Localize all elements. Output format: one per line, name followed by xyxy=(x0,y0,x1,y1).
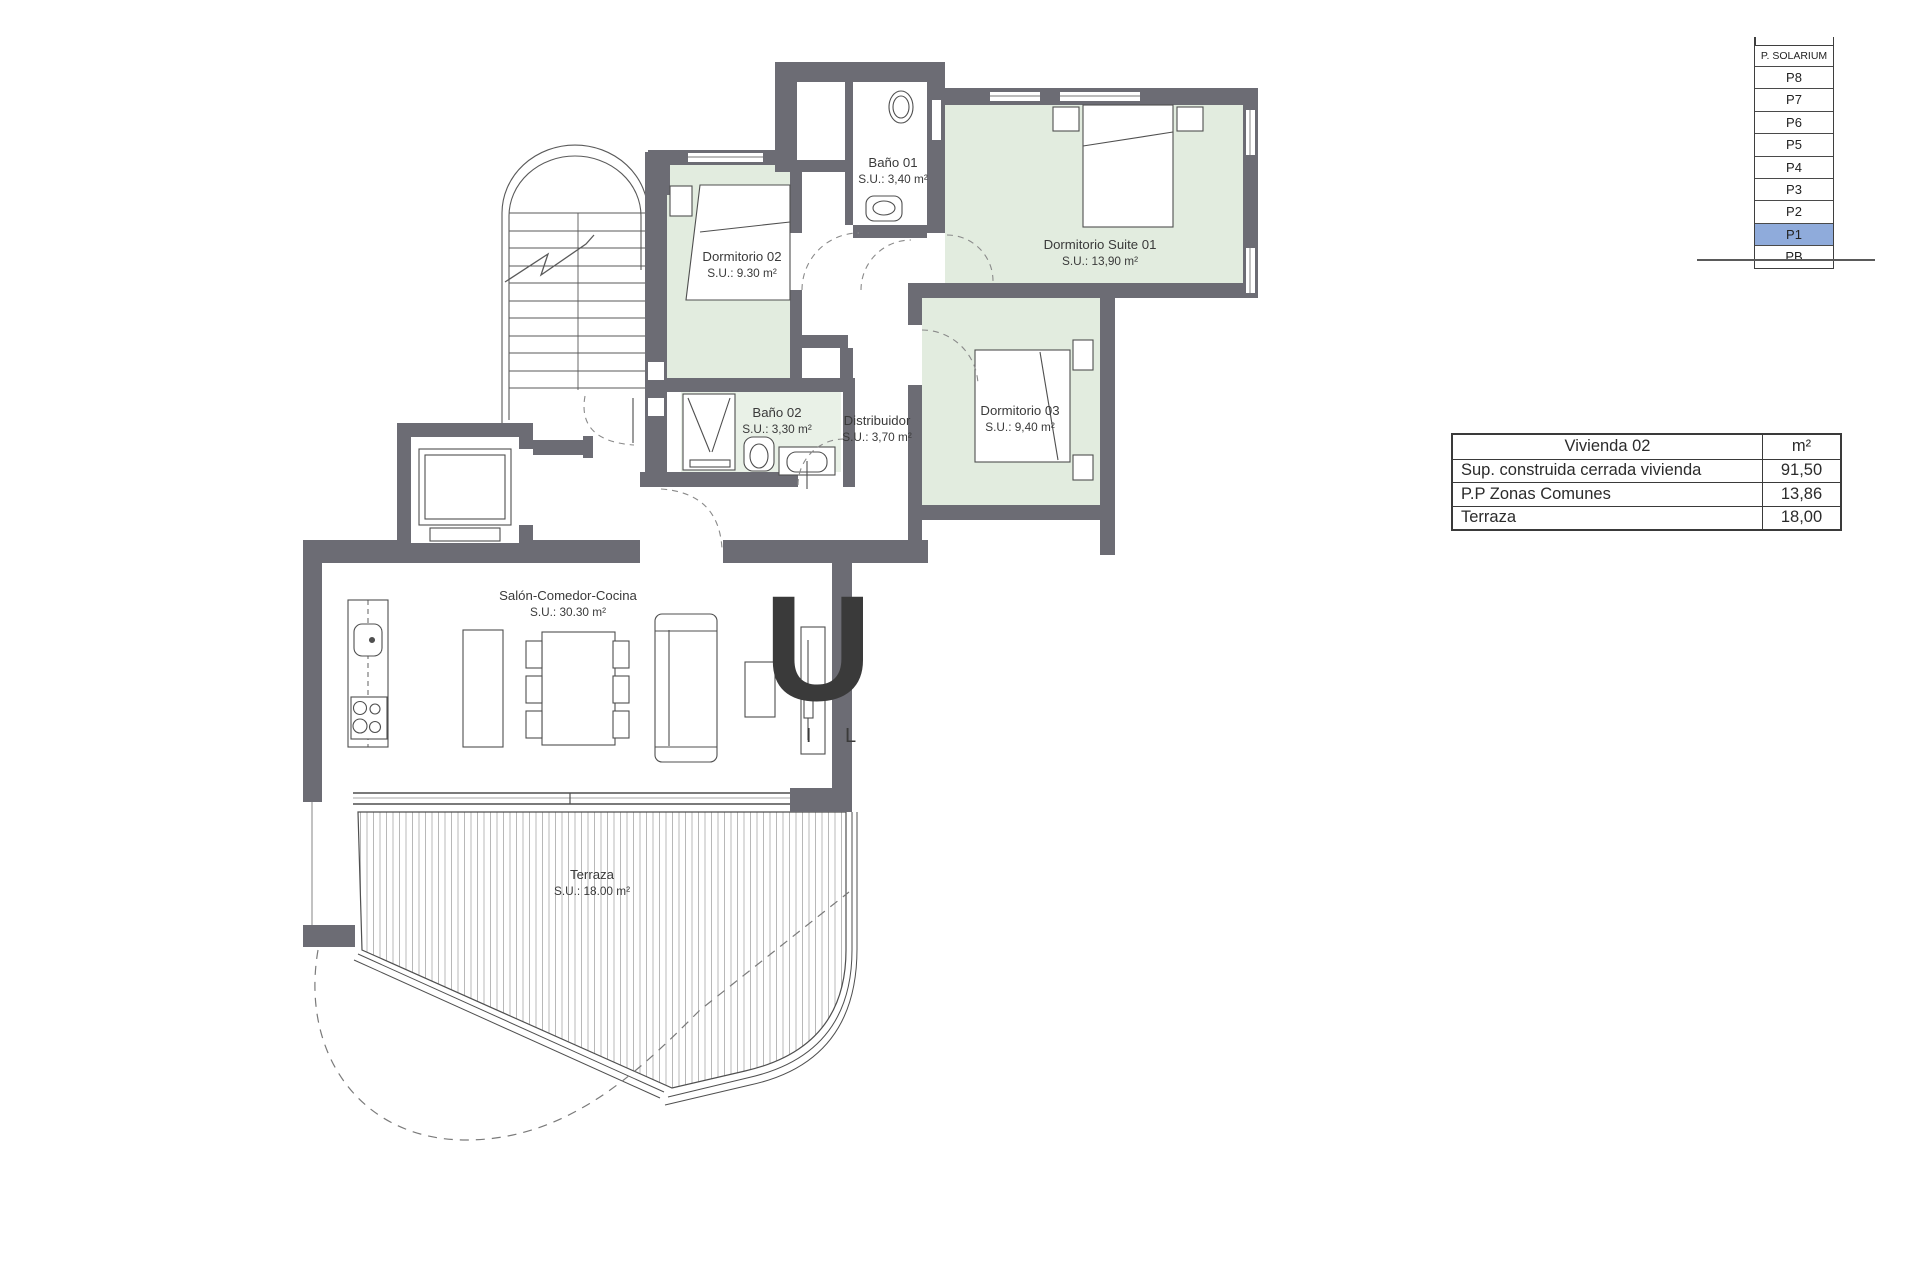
bed-dorm02 xyxy=(686,185,790,300)
stair-treads xyxy=(509,213,648,390)
area-table-title: Vivienda 02 xyxy=(1453,435,1762,459)
area-row-label: Sup. construida cerrada vivienda xyxy=(1453,459,1762,483)
label-bano-01: Baño 01 xyxy=(868,155,917,170)
area-row-value: 18,00 xyxy=(1762,506,1840,530)
dining-table xyxy=(542,632,615,745)
level-indicator-post xyxy=(1833,37,1835,46)
svg-text:S.U.: 18.00 m²: S.U.: 18.00 m² xyxy=(554,884,630,898)
watermark-letter: U xyxy=(764,564,872,732)
svg-text:S.U.: 13,90 m²: S.U.: 13,90 m² xyxy=(1062,254,1138,268)
stair-break-line xyxy=(505,235,594,282)
svg-text:S.U.: 9,40 m²: S.U.: 9,40 m² xyxy=(985,420,1055,434)
terrace-deck xyxy=(354,812,857,1105)
nightstand xyxy=(1177,107,1203,131)
area-row-value: 91,50 xyxy=(1762,459,1840,483)
scanned-floor-plan-page: U I L Dormitorio 02 S.U.: 9.30 m² Baño 0… xyxy=(0,0,1920,1280)
area-row-label: Terraza xyxy=(1453,506,1762,530)
label-dormitorio-02: Dormitorio 02 xyxy=(702,249,781,264)
nightstand xyxy=(670,186,692,216)
level-row-p4: P4 xyxy=(1755,157,1833,179)
svg-text:S.U.: 3,70 m²: S.U.: 3,70 m² xyxy=(842,430,912,444)
watermark-letters: I L xyxy=(806,725,870,747)
level-row-p5: P5 xyxy=(1755,134,1833,156)
kitchen-sink-icon xyxy=(354,624,382,656)
label-distribuidor: Distribuidor xyxy=(844,413,911,428)
chair xyxy=(613,711,629,738)
chair xyxy=(613,676,629,703)
bed-suite xyxy=(1083,105,1173,227)
level-row-p3: P3 xyxy=(1755,179,1833,201)
label-terraza: Terraza xyxy=(570,867,615,882)
kitchen-island xyxy=(463,630,503,747)
level-row-p2: P2 xyxy=(1755,201,1833,223)
chair xyxy=(526,711,542,738)
area-table-unit: m² xyxy=(1762,435,1840,459)
level-indicator: P. SOLARIUM P8 P7 P6 P5 P4 P3 P2 P1 PB xyxy=(1754,45,1834,269)
ground-line xyxy=(1697,259,1875,261)
chair xyxy=(613,641,629,668)
level-row-pb: PB xyxy=(1755,246,1833,267)
label-bano-02: Baño 02 xyxy=(752,405,801,420)
area-row-value: 13,86 xyxy=(1762,482,1840,506)
label-salon: Salón-Comedor-Cocina xyxy=(499,588,637,603)
level-row-p7: P7 xyxy=(1755,89,1833,111)
glass-wall xyxy=(353,792,790,805)
chair xyxy=(526,641,542,668)
watermark: U I L xyxy=(764,564,872,747)
area-table: Vivienda 02 m² Sup. construida cerrada v… xyxy=(1451,433,1842,531)
label-dormitorio-03: Dormitorio 03 xyxy=(980,403,1059,418)
level-row-p6: P6 xyxy=(1755,112,1833,134)
svg-text:S.U.: 9.30 m²: S.U.: 9.30 m² xyxy=(707,266,777,280)
wardrobe xyxy=(1073,340,1093,370)
area-row-label: P.P Zonas Comunes xyxy=(1453,482,1762,506)
level-header: P. SOLARIUM xyxy=(1755,46,1833,67)
stairwell xyxy=(502,145,648,423)
wardrobe xyxy=(1073,455,1093,480)
level-row-p1-highlighted: P1 xyxy=(1755,224,1833,246)
level-indicator-post xyxy=(1754,37,1756,46)
nightstand xyxy=(1053,107,1079,131)
svg-text:S.U.: 3,30 m²: S.U.: 3,30 m² xyxy=(742,422,812,436)
level-row-p8: P8 xyxy=(1755,67,1833,89)
floor-plan: U I L Dormitorio 02 S.U.: 9.30 m² Baño 0… xyxy=(0,0,1920,1280)
svg-text:S.U.: 30.30 m²: S.U.: 30.30 m² xyxy=(530,605,606,619)
sofa xyxy=(655,614,717,762)
svg-text:S.U.: 3,40 m²: S.U.: 3,40 m² xyxy=(858,172,928,186)
label-dormitorio-suite-01: Dormitorio Suite 01 xyxy=(1044,237,1157,252)
chair xyxy=(526,676,542,703)
